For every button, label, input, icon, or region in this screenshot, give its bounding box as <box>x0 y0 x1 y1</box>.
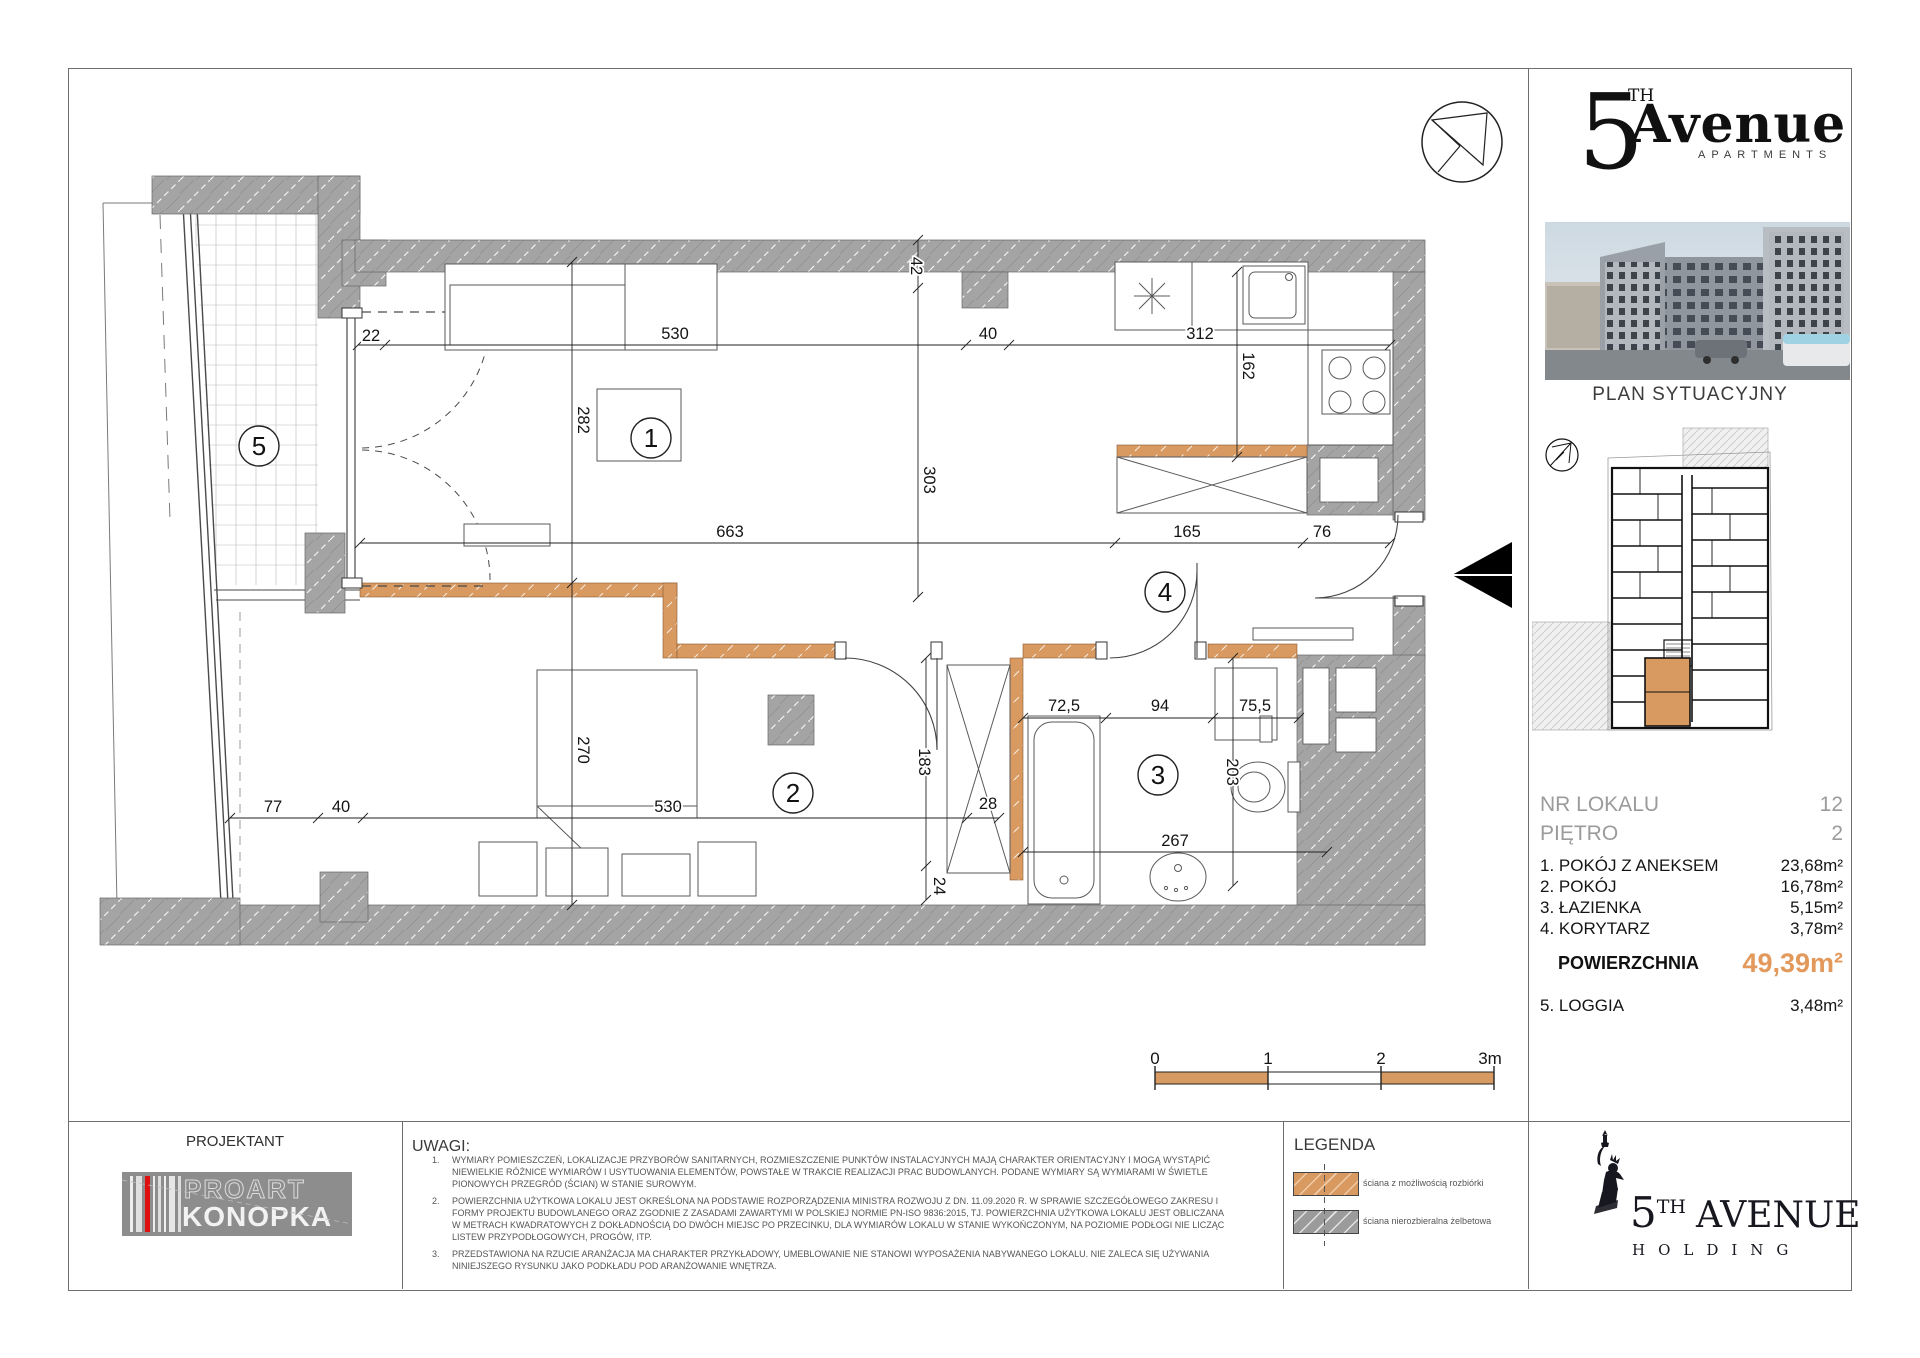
room-area: 3,78m² <box>1790 919 1843 939</box>
room-area-row: 4. KORYTARZ 3,78m² <box>1540 919 1843 939</box>
total-area-row: POWIERZCHNIA 49,39m² <box>1540 948 1843 979</box>
svg-text:530: 530 <box>654 798 682 816</box>
svg-text:162: 162 <box>1239 352 1257 380</box>
room-circle-5: 5 <box>239 426 279 466</box>
kitchen-sink-icon <box>1134 278 1170 314</box>
loggia-area: 3,48m² <box>1790 996 1843 1016</box>
total-area-label: POWIERZCHNIA <box>1558 953 1699 974</box>
note-line: POWIERZCHNIA UŻYTKOWA LOKALU JEST OKREŚL… <box>452 1196 1218 1206</box>
room-area: 23,68m² <box>1781 856 1843 876</box>
livingroom-furniture <box>445 264 717 546</box>
svg-text:1: 1 <box>1263 1049 1272 1068</box>
room-name: 2. POKÓJ <box>1540 877 1617 897</box>
floor-plan-drawing: 22 530 40 312 42 303 282 270 162 663 165… <box>68 68 1528 1121</box>
note-number: 2. <box>432 1196 440 1206</box>
svg-text:22: 22 <box>362 327 380 345</box>
room2-door <box>845 658 937 750</box>
svg-text:28: 28 <box>979 795 997 813</box>
unit-number-value: 12 <box>1820 793 1843 817</box>
note-line: FORMY PROJEKTU BUDOWLANEGO ORAZ ZGODNIE … <box>452 1208 1224 1218</box>
svg-text:663: 663 <box>716 523 744 541</box>
room-circle-1: 1 <box>631 418 671 458</box>
room-name: 3. ŁAZIENKA <box>1540 898 1641 918</box>
proart-konopka-logo: PROART KONOPKA <box>122 1172 352 1236</box>
unit-number-row: NR LOKALU 12 <box>1540 793 1843 817</box>
note-line: W METRACH KWADRATOWYCH Z DOKŁADNOŚCIĄ DO… <box>452 1220 1224 1230</box>
svg-text:4: 4 <box>1158 577 1172 607</box>
scale-bar: 0 1 2 3m <box>1150 1049 1502 1090</box>
note-number: 3. <box>432 1249 440 1259</box>
loggia-row: 5. LOGGIA 3,48m² <box>1540 996 1843 1016</box>
svg-text:530: 530 <box>661 325 689 343</box>
dimension-lines <box>225 235 1395 910</box>
building-photo <box>1545 222 1850 380</box>
svg-text:3m: 3m <box>1478 1049 1502 1068</box>
footer-divider-1 <box>402 1121 403 1289</box>
room-area-row: 1. POKÓJ Z ANEKSEM 23,68m² <box>1540 856 1843 876</box>
apartments-logo-sub: APARTMENTS <box>1698 149 1832 161</box>
svg-text:76: 76 <box>1313 523 1331 541</box>
floor-row: PIĘTRO 2 <box>1540 822 1843 846</box>
svg-text:3: 3 <box>1151 760 1165 790</box>
holding-five: 5 <box>1630 1188 1657 1237</box>
svg-text:270: 270 <box>574 736 592 764</box>
unit-number-label: NR LOKALU <box>1540 793 1659 817</box>
note-line: WYMIARY POMIESZCZEŃ, LOKALIZACJE PRZYBOR… <box>452 1155 1210 1165</box>
site-plan <box>1532 420 1850 770</box>
apartments-logo-word: Avenue <box>1630 94 1846 155</box>
svg-text:72,5: 72,5 <box>1048 697 1080 715</box>
site-north-icon <box>1546 439 1578 471</box>
svg-text:24: 24 <box>930 877 948 895</box>
room-area-row: 2. POKÓJ 16,78m² <box>1540 877 1843 897</box>
svg-text:0: 0 <box>1150 1049 1159 1068</box>
svg-text:5: 5 <box>252 431 266 461</box>
svg-text:2: 2 <box>1376 1049 1385 1068</box>
legend-label-concrete: ściana nierozbieralna żelbetowa <box>1363 1216 1491 1226</box>
svg-text:267: 267 <box>1161 832 1189 850</box>
room-name: 1. POKÓJ Z ANEKSEM <box>1540 856 1719 876</box>
holding-word: AVENUE <box>1696 1195 1861 1236</box>
svg-text:42: 42 <box>907 257 925 275</box>
room-area-row: 3. ŁAZIENKA 5,15m² <box>1540 898 1843 918</box>
footer-divider <box>68 1121 1850 1122</box>
toilet-tank <box>1288 762 1300 812</box>
svg-text:165: 165 <box>1173 523 1201 541</box>
north-arrow-icon <box>1422 102 1502 182</box>
uwagi-title: UWAGI: <box>412 1138 470 1156</box>
legend-swatch-concrete <box>1293 1210 1359 1234</box>
note-line: PIONOWYCH PRZEGRÓD (ŚCIAN) W STANIE SURO… <box>452 1179 696 1189</box>
svg-text:94: 94 <box>1151 697 1169 715</box>
svg-text:2: 2 <box>786 778 800 808</box>
note-line: PRZEDSTAWIONA NA RZUCIE ARANŻACJA MA CHA… <box>452 1249 1209 1259</box>
svg-text:303: 303 <box>920 466 938 494</box>
svg-text:282: 282 <box>574 406 592 434</box>
room-circle-4: 4 <box>1145 572 1185 612</box>
svg-text:75,5: 75,5 <box>1239 697 1271 715</box>
total-area-value: 49,39m² <box>1742 948 1843 979</box>
svg-text:PROART: PROART <box>184 1174 306 1204</box>
note-number: 1. <box>432 1155 440 1165</box>
legend-title: LEGENDA <box>1294 1135 1375 1155</box>
holding-th: TH <box>1657 1196 1686 1218</box>
legend-dashed-line <box>1324 1164 1325 1246</box>
site-plan-title: PLAN SYTUACYJNY <box>1530 384 1850 406</box>
room-area: 5,15m² <box>1790 898 1843 918</box>
floor-value: 2 <box>1831 822 1843 846</box>
svg-text:312: 312 <box>1186 325 1214 343</box>
room-area: 16,78m² <box>1781 877 1843 897</box>
legend-label-removable: ściana z możliwością rozbiórki <box>1363 1178 1484 1188</box>
entrance-arrow-icon <box>1452 542 1512 608</box>
svg-text:77: 77 <box>264 798 282 816</box>
washbasin <box>1150 853 1206 901</box>
legend-swatch-removable <box>1293 1172 1359 1196</box>
floorplan-sheet: 22 530 40 312 42 303 282 270 162 663 165… <box>0 0 1920 1358</box>
holding-sub: HOLDING <box>1632 1241 1801 1259</box>
note-line: NINIEJSZEGO RYSUNKU JAKO PODKŁADU POD AR… <box>452 1261 777 1271</box>
svg-text:203: 203 <box>1223 758 1241 786</box>
note-line: LISTEW PRZYPODŁOGOWYCH, PROGÓW, ITP. <box>452 1232 652 1242</box>
room-circle-2: 2 <box>773 773 813 813</box>
balcony-slab-outline <box>103 203 225 906</box>
room-circle-3: 3 <box>1138 755 1178 795</box>
loggia-name: 5. LOGGIA <box>1540 996 1624 1016</box>
note-line: NIEWIELKIE RÓŻNICE WYMIARÓW I USYTUOWANI… <box>452 1167 1208 1177</box>
panel-divider <box>1528 68 1529 1289</box>
svg-text:40: 40 <box>332 798 350 816</box>
footer-divider-2 <box>1283 1121 1284 1289</box>
svg-text:183: 183 <box>915 748 933 776</box>
projektant-label: PROJEKTANT <box>68 1133 402 1150</box>
loggia-tiles <box>190 214 320 585</box>
svg-text:1: 1 <box>644 423 658 453</box>
floor-label: PIĘTRO <box>1540 822 1618 846</box>
room-name: 4. KORYTARZ <box>1540 919 1650 939</box>
holding-logo: 5THAVENUE HOLDING <box>1630 1188 1830 1260</box>
svg-text:40: 40 <box>979 325 997 343</box>
